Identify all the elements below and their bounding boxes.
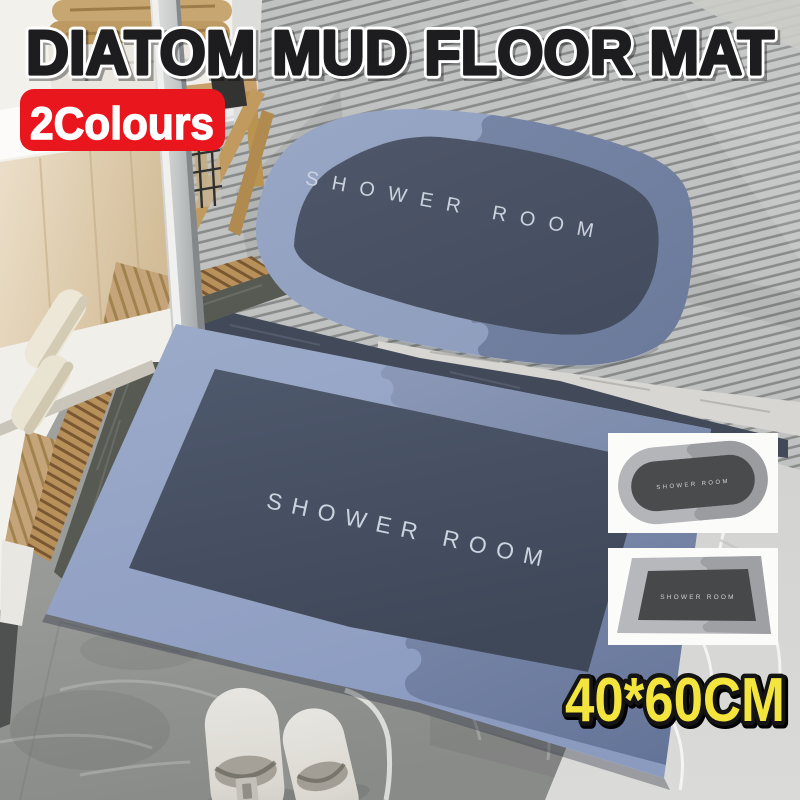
svg-text:2Colours: 2Colours [30,98,214,149]
svg-text:40*60CM: 40*60CM [565,666,785,735]
svg-text:SHOWER ROOM: SHOWER ROOM [660,594,735,601]
svg-text:DIATOM MUD FLOOR MAT: DIATOM MUD FLOOR MAT [26,19,774,88]
